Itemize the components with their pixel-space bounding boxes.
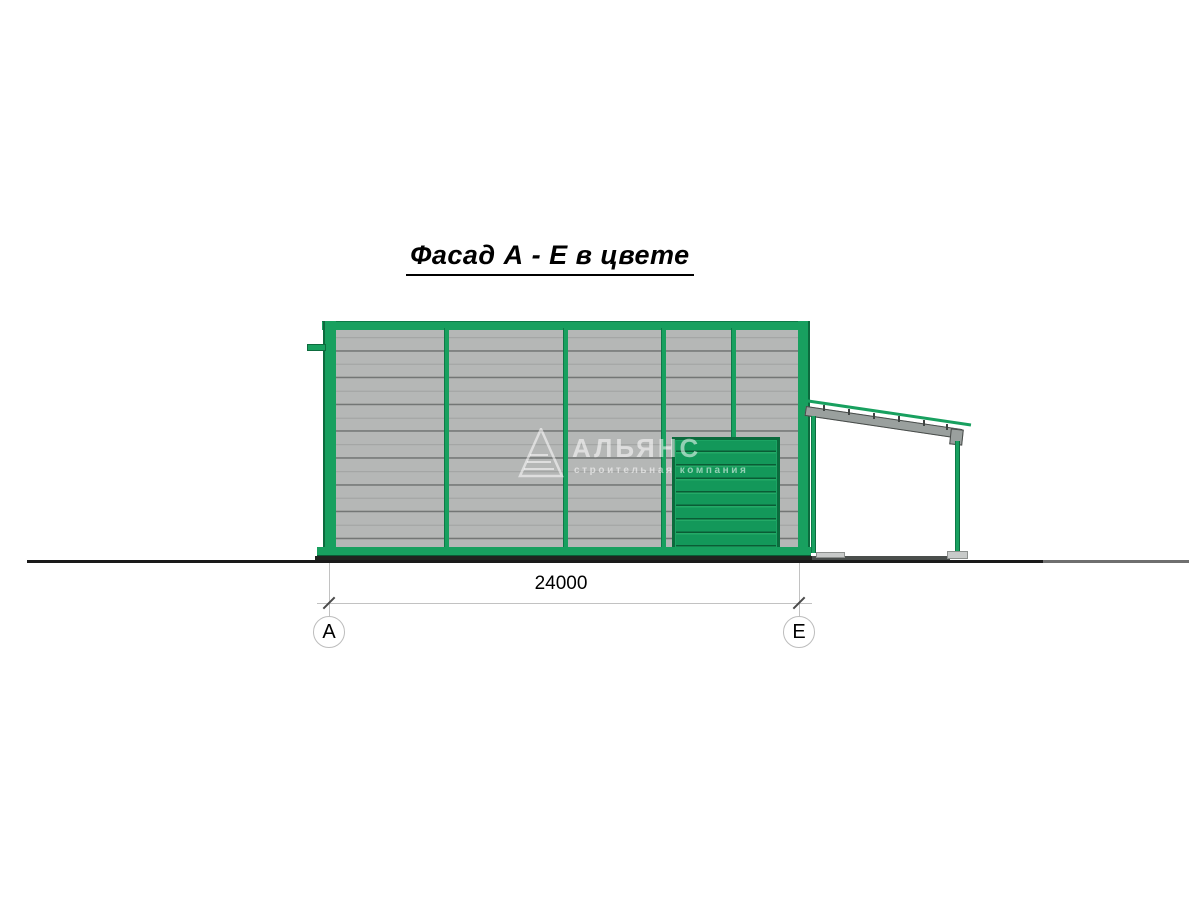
axis-marker-e-label: Е xyxy=(792,621,805,643)
dimension-value: 24000 xyxy=(449,573,673,595)
ground-line xyxy=(27,560,1043,563)
gutter-stub xyxy=(307,344,326,351)
sectional-gate xyxy=(672,437,780,558)
left-corner-column xyxy=(323,321,336,553)
panel-joint-mullion xyxy=(444,328,449,548)
canopy-purlin-tick xyxy=(823,405,825,411)
panel-joint-mullion xyxy=(563,328,568,548)
canopy-post-far xyxy=(955,441,960,553)
drawing-canvas: Фасад А - Е в цвете 24000 А Е xyxy=(0,0,1200,900)
ground-line-extension xyxy=(1043,560,1189,563)
axis-marker-e: Е xyxy=(783,616,815,648)
axis-marker-a-label: А xyxy=(322,621,335,643)
canopy-purlin-tick xyxy=(946,424,948,430)
post-footing-pad xyxy=(947,551,968,559)
post-footing-pad xyxy=(816,552,845,558)
canopy-purlin-tick xyxy=(873,413,875,419)
canopy-post-near xyxy=(811,416,816,553)
canopy-purlin-tick xyxy=(923,420,925,426)
canopy-purlin-tick xyxy=(848,409,850,415)
panel-joint-mullion xyxy=(661,328,666,548)
canopy-purlin-tick xyxy=(898,416,900,422)
drawing-title: Фасад А - Е в цвете xyxy=(310,240,790,276)
dimension-line xyxy=(317,603,812,604)
panel-joint-mullion xyxy=(731,328,736,438)
extension-line-left xyxy=(329,563,330,617)
right-corner-column xyxy=(798,321,810,553)
extension-line-right xyxy=(799,563,800,617)
drawing-title-text: Фасад А - Е в цвете xyxy=(406,240,693,276)
axis-marker-a: А xyxy=(313,616,345,648)
